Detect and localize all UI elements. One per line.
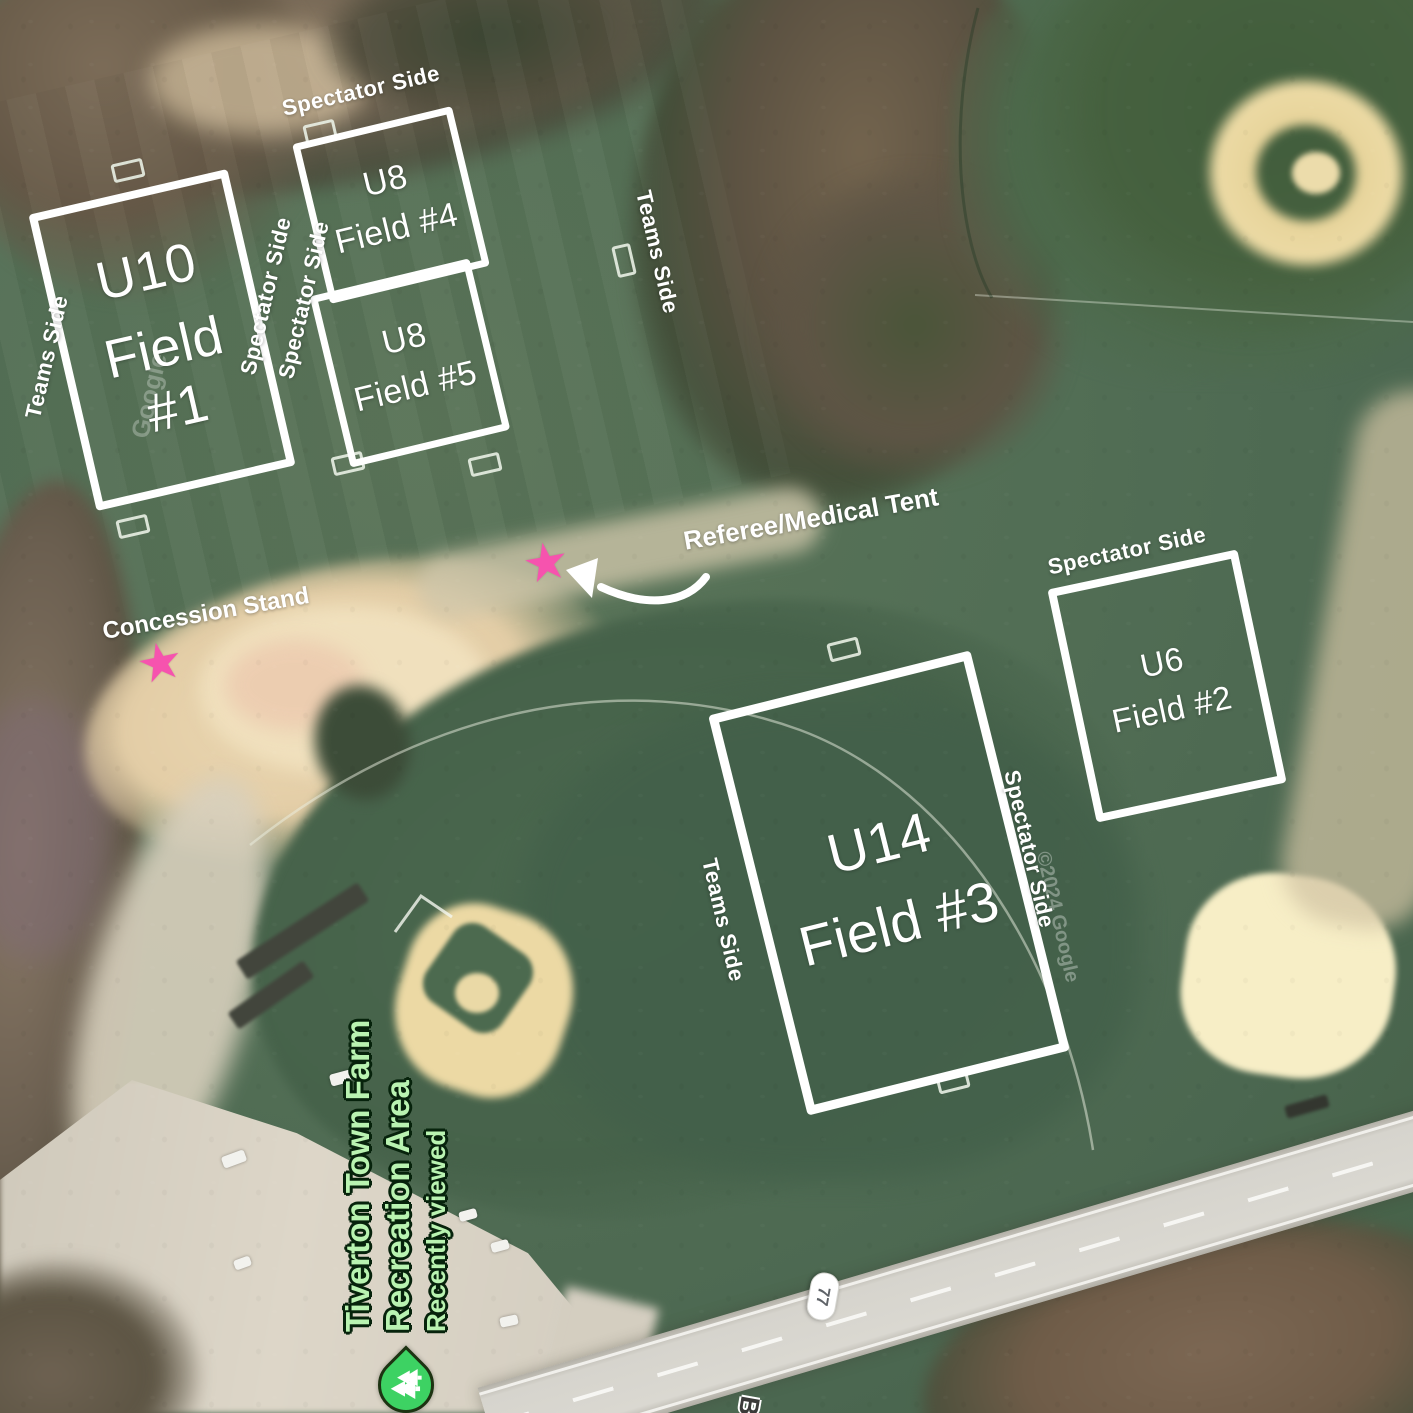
field-age-group: U10 — [90, 230, 202, 313]
partial-road-name-label: B — [725, 1381, 772, 1413]
field-age-group: U14 — [821, 799, 938, 887]
place-name-line1[interactable]: Tiverton Town Farm — [338, 972, 378, 1332]
field-name: Field #2 — [1109, 678, 1236, 740]
place-name-line2[interactable]: Recreation Area — [378, 972, 418, 1332]
field-age-group: U8 — [359, 157, 411, 205]
field-age-group: U8 — [378, 315, 430, 363]
field-name: Field #5 — [350, 353, 481, 420]
place-label[interactable]: Tiverton Town Farm Recreation Area Recen… — [338, 972, 458, 1332]
field-name: Field #4 — [331, 195, 462, 262]
star-icon: ★ — [519, 533, 574, 592]
star-icon: ★ — [132, 633, 188, 694]
field-age-group: U6 — [1137, 639, 1187, 685]
place-status: Recently viewed — [421, 972, 453, 1332]
satellite-map-canvas[interactable]: Google ©2024 Google 77 B Tiverton Town F… — [0, 0, 1413, 1413]
evergreen-trees-icon — [386, 1365, 424, 1403]
field-name: Field #3 — [793, 867, 1006, 979]
field-name: Field #1 — [65, 296, 276, 459]
